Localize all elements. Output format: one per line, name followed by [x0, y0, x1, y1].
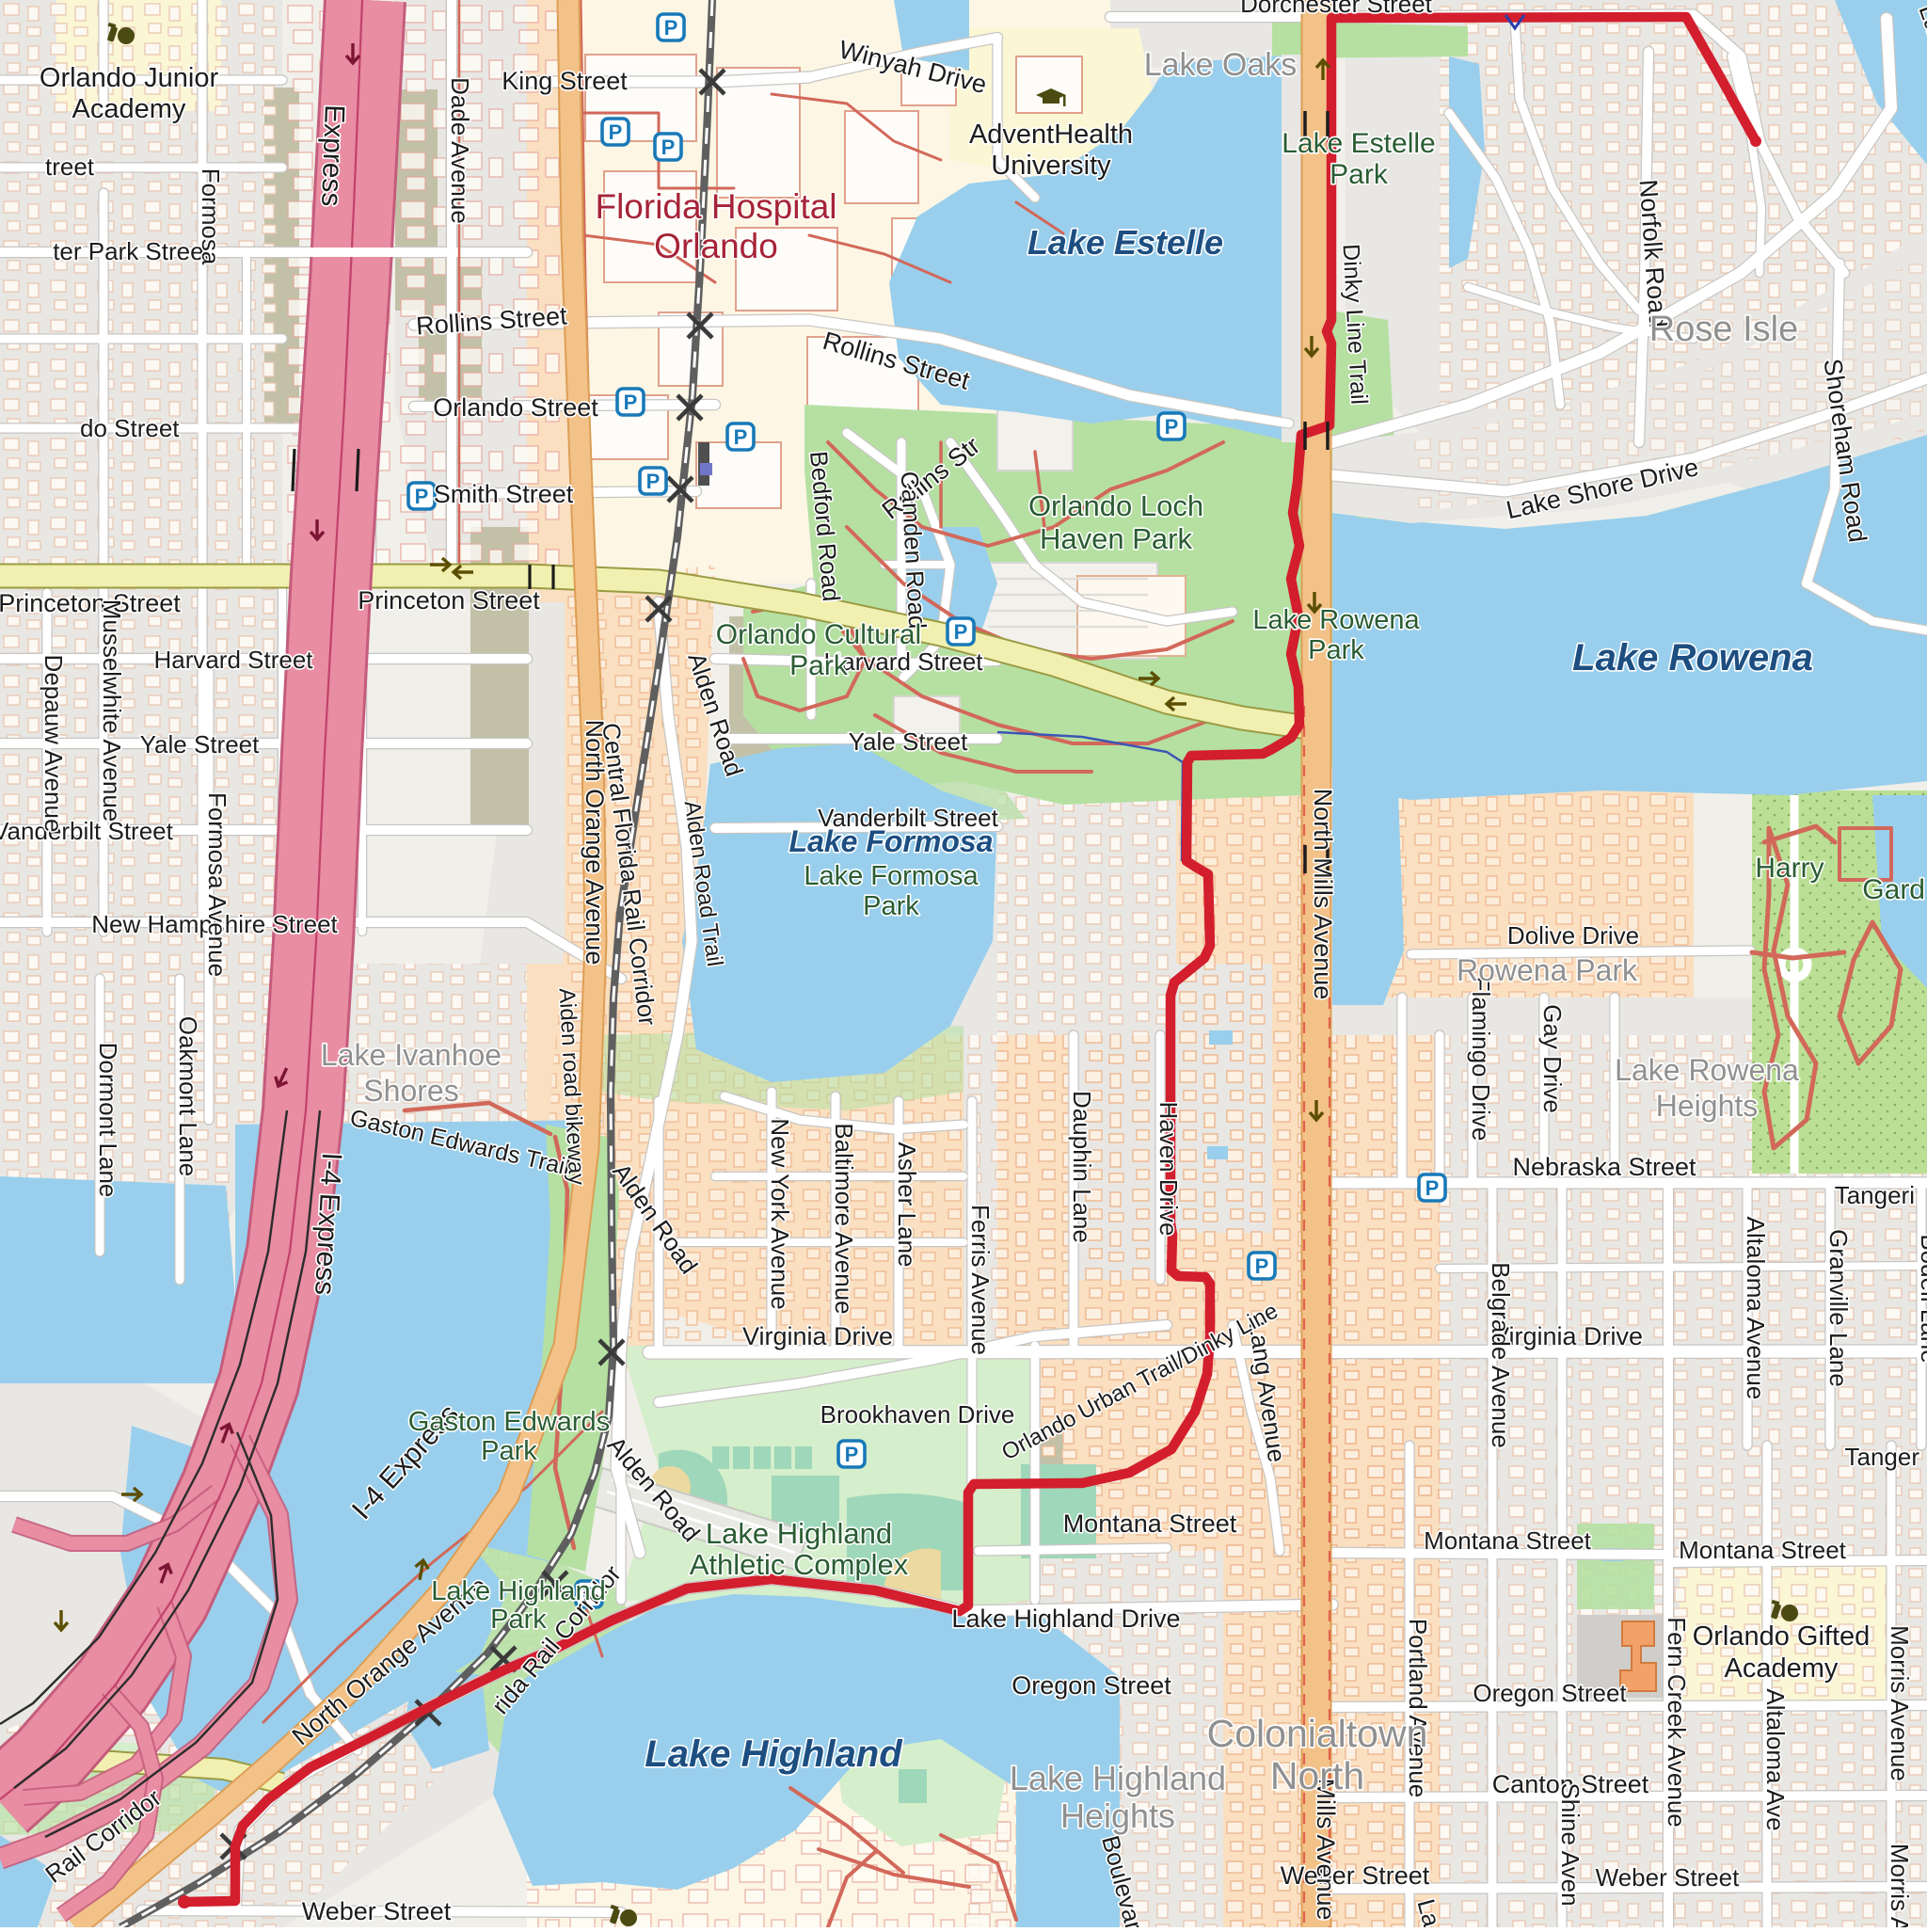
svg-text:Formosa Avenue: Formosa Avenue — [203, 792, 231, 977]
svg-text:Altaloma Ave: Altaloma Ave — [1761, 1688, 1790, 1830]
svg-text:Ferris Avenue: Ferris Avenue — [966, 1205, 995, 1355]
svg-text:Park: Park — [490, 1605, 547, 1635]
svg-text:Park: Park — [789, 650, 849, 681]
svg-text:Academy: Academy — [1725, 1653, 1839, 1684]
svg-text:Dade Avenue: Dade Avenue — [446, 77, 474, 224]
svg-text:Princeton Street: Princeton Street — [358, 586, 540, 615]
svg-text:Weber Street: Weber Street — [1596, 1863, 1740, 1892]
svg-text:Morris Ave: Morris Ave — [1886, 1844, 1914, 1927]
svg-text:Weber Street: Weber Street — [1281, 1861, 1430, 1890]
svg-text:North Mills Avenue: North Mills Avenue — [1309, 789, 1337, 1000]
svg-text:Lake Ivanhoe: Lake Ivanhoe — [321, 1038, 502, 1072]
svg-text:Lake Estelle: Lake Estelle — [1027, 223, 1223, 262]
svg-text:Virginia Drive: Virginia Drive — [742, 1322, 893, 1350]
svg-text:Lake Rowena: Lake Rowena — [1252, 605, 1420, 635]
svg-text:Lake Highland: Lake Highland — [1010, 1759, 1226, 1797]
svg-text:P: P — [609, 120, 623, 144]
svg-text:Haven Drive: Haven Drive — [1155, 1101, 1183, 1236]
svg-text:Belgrade Avenue: Belgrade Avenue — [1487, 1262, 1515, 1448]
svg-text:do Street: do Street — [80, 414, 180, 442]
svg-text:P: P — [1425, 1176, 1440, 1200]
svg-text:Harvard Street: Harvard Street — [823, 647, 983, 676]
svg-text:Princeton Street: Princeton Street — [0, 589, 181, 617]
svg-text:Vanderbilt Street: Vanderbilt Street — [0, 817, 174, 845]
svg-text:King Street: King Street — [502, 67, 628, 95]
svg-text:Heights: Heights — [1060, 1796, 1175, 1835]
svg-text:P: P — [646, 470, 661, 493]
svg-text:Harry: Harry — [1755, 853, 1823, 884]
svg-text:Gaston Edwards: Gaston Edwards — [408, 1407, 610, 1437]
svg-text:Orlando Street: Orlando Street — [433, 393, 598, 422]
svg-text:Orlando Loch: Orlando Loch — [1028, 489, 1203, 522]
svg-text:ter Park Street: ter Park Street — [53, 237, 211, 265]
svg-text:Smith Street: Smith Street — [434, 480, 574, 508]
svg-text:Flamingo Drive: Flamingo Drive — [1467, 977, 1495, 1142]
svg-text:Weber Street: Weber Street — [302, 1897, 452, 1925]
svg-text:Morris Avenue: Morris Avenue — [1886, 1625, 1914, 1781]
svg-text:P: P — [734, 425, 748, 449]
svg-text:Dormont Lane: Dormont Lane — [94, 1043, 122, 1198]
svg-text:Tangeri: Tangeri — [1835, 1181, 1915, 1209]
svg-text:treet: treet — [45, 152, 95, 181]
svg-text:Tanger: Tanger — [1845, 1443, 1920, 1471]
svg-text:Shine Aven: Shine Aven — [1556, 1782, 1585, 1906]
svg-text:Yale Street: Yale Street — [849, 727, 968, 756]
svg-text:Park: Park — [863, 891, 919, 921]
svg-text:Express: Express — [315, 104, 350, 207]
svg-text:Granville Lane: Granville Lane — [1824, 1229, 1853, 1387]
svg-text:Lake Rowena: Lake Rowena — [1615, 1053, 1799, 1087]
svg-text:P: P — [1255, 1254, 1269, 1278]
svg-text:Oregon Street: Oregon Street — [1011, 1671, 1171, 1700]
svg-text:Altaloma Avenue: Altaloma Avenue — [1742, 1217, 1770, 1400]
svg-text:Montana Street: Montana Street — [1424, 1526, 1592, 1555]
svg-text:P: P — [415, 485, 429, 508]
svg-text:Gard: Gard — [1862, 874, 1925, 905]
svg-text:Oakmont Lane: Oakmont Lane — [174, 1016, 202, 1177]
svg-text:Lake Highland: Lake Highland — [645, 1733, 903, 1775]
svg-text:Depauw Avenue: Depauw Avenue — [40, 655, 68, 833]
svg-text:Dorchester Street: Dorchester Street — [1240, 0, 1433, 18]
svg-text:Bodell Lane: Bodell Lane — [1916, 1234, 1927, 1363]
svg-text:Shores: Shores — [363, 1074, 458, 1108]
svg-text:P: P — [845, 1443, 859, 1466]
svg-text:Formosa: Formosa — [197, 168, 225, 265]
svg-text:Orlando Junior: Orlando Junior — [40, 63, 219, 93]
svg-text:Rowena Park: Rowena Park — [1457, 953, 1638, 987]
svg-text:Lake Highland Drive: Lake Highland Drive — [951, 1605, 1180, 1633]
svg-text:P: P — [661, 136, 676, 159]
svg-text:Heights: Heights — [1656, 1089, 1759, 1123]
svg-text:Harvard Street: Harvard Street — [153, 646, 313, 674]
svg-text:Oregon Street: Oregon Street — [1473, 1679, 1627, 1707]
svg-text:P: P — [954, 620, 968, 644]
svg-text:Lake Formosa: Lake Formosa — [804, 861, 979, 891]
svg-text:Dolive Drive: Dolive Drive — [1507, 921, 1639, 950]
svg-text:AdventHealth: AdventHealth — [969, 120, 1133, 150]
svg-text:Nebraska Street: Nebraska Street — [1512, 1153, 1696, 1181]
svg-text:Gay Drive: Gay Drive — [1538, 1004, 1567, 1113]
svg-text:North: North — [1270, 1754, 1364, 1797]
svg-text:Fern Creek Avenue: Fern Creek Avenue — [1663, 1617, 1691, 1828]
svg-text:Asher Lane: Asher Lane — [893, 1142, 921, 1268]
svg-text:P: P — [1165, 415, 1179, 439]
svg-text:Athletic Complex: Athletic Complex — [690, 1548, 909, 1581]
svg-text:Yale Street: Yale Street — [140, 730, 260, 758]
svg-text:Lake Estelle: Lake Estelle — [1282, 128, 1435, 159]
svg-text:Musselwhite Avenue: Musselwhite Avenue — [98, 599, 126, 822]
svg-text:Brookhaven Drive: Brookhaven Drive — [820, 1400, 1015, 1429]
svg-text:Academy: Academy — [72, 94, 186, 124]
svg-text:Mills Avenue: Mills Avenue — [1312, 1778, 1340, 1920]
svg-text:Dauphin Lane: Dauphin Lane — [1068, 1091, 1096, 1243]
svg-text:Lake Oaks: Lake Oaks — [1144, 47, 1298, 83]
svg-text:Rose Isle: Rose Isle — [1649, 310, 1798, 349]
svg-text:Orlando Gifted: Orlando Gifted — [1693, 1621, 1871, 1652]
svg-text:Portland Avenue: Portland Avenue — [1404, 1619, 1432, 1797]
svg-text:Montana Street: Montana Street — [1063, 1509, 1237, 1538]
svg-text:P: P — [624, 391, 638, 414]
svg-text:P: P — [664, 16, 678, 40]
svg-text:Baltimore Avenue: Baltimore Avenue — [830, 1123, 858, 1314]
svg-text:Lake Highland: Lake Highland — [706, 1517, 892, 1550]
svg-text:Orlando Cultural: Orlando Cultural — [716, 619, 921, 650]
svg-text:Lake Rowena: Lake Rowena — [1572, 637, 1813, 679]
svg-text:Haven Park: Haven Park — [1040, 522, 1192, 555]
svg-text:Park: Park — [1308, 635, 1364, 665]
svg-text:Park: Park — [1330, 159, 1389, 190]
svg-text:Orlando: Orlando — [654, 227, 778, 265]
svg-text:Lake Formosa: Lake Formosa — [789, 824, 994, 858]
svg-text:Florida Hospital: Florida Hospital — [595, 187, 836, 226]
svg-text:University: University — [991, 151, 1111, 181]
svg-text:Park: Park — [481, 1436, 537, 1466]
svg-text:Montana Street: Montana Street — [1679, 1536, 1847, 1564]
svg-text:Colonialtown: Colonialtown — [1207, 1712, 1428, 1755]
svg-text:Lake Highland: Lake Highland — [431, 1576, 605, 1606]
svg-text:New York Avenue: New York Avenue — [766, 1118, 794, 1309]
